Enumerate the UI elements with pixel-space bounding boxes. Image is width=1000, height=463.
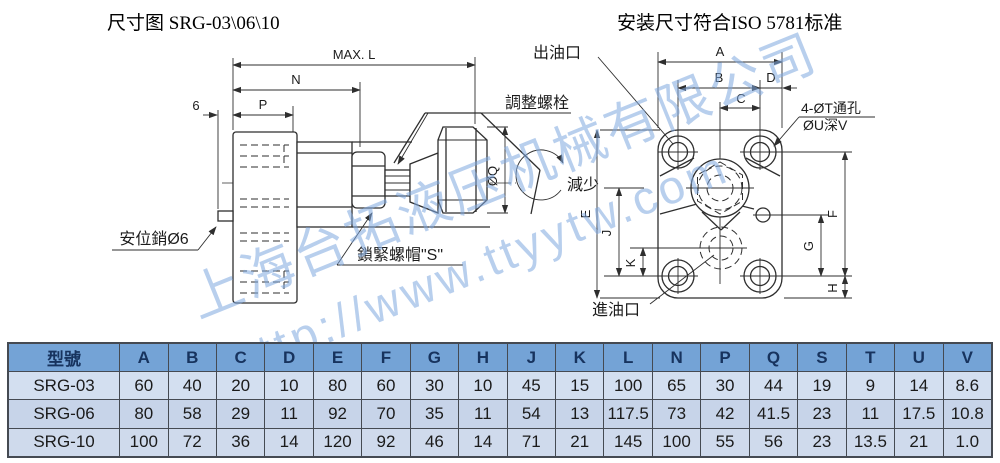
positioning-pin	[218, 211, 233, 221]
dimension-cell: 73	[652, 400, 700, 428]
dimension-cell: 35	[410, 400, 458, 428]
dimension-cell: 9	[846, 372, 894, 400]
dimension-cell: 30	[410, 372, 458, 400]
dimension-cell: 46	[410, 428, 458, 456]
dim-label-d: D	[766, 70, 775, 85]
dimension-cell: 15	[556, 372, 604, 400]
dimension-cell: 58	[168, 400, 216, 428]
dimension-cell: 42	[701, 400, 749, 428]
dimension-cell: 14	[265, 428, 313, 456]
dimension-cell: 145	[604, 428, 652, 456]
dimension-cell: 45	[507, 372, 555, 400]
dim-label-h: H	[825, 283, 840, 292]
adjust-bolt-label: 調整螺栓	[505, 94, 569, 112]
dimension-cell: 21	[556, 428, 604, 456]
inlet-label: 進油口	[592, 301, 640, 319]
dimension-cell: 13	[556, 400, 604, 428]
dimension-cell: 19	[798, 372, 846, 400]
model-column-header: 型號	[9, 344, 120, 372]
dim-label-g: G	[801, 241, 816, 251]
lock-nut	[352, 152, 385, 208]
dimension-cell: 1.0	[943, 428, 991, 456]
dimension-cell: 36	[216, 428, 264, 456]
dimension-cell: 11	[265, 400, 313, 428]
dim-label-b: B	[715, 70, 724, 85]
dimension-cell: 70	[362, 400, 410, 428]
dimension-cell: 92	[313, 400, 361, 428]
dimension-cell: 23	[798, 428, 846, 456]
dimension-cell: 17.5	[895, 400, 943, 428]
dim-column-header: T	[846, 344, 894, 372]
lock-nut-label: 鎖緊螺帽"S"	[357, 246, 443, 264]
table-header-row: 型號ABCDEFGHJKLNPQSTUV	[9, 344, 992, 372]
dimension-cell: 11	[459, 400, 507, 428]
dimension-cell: 8.6	[943, 372, 991, 400]
dim-column-header: G	[410, 344, 458, 372]
dim-column-header: P	[701, 344, 749, 372]
dimension-cell: 29	[216, 400, 264, 428]
dimension-cell: 100	[652, 428, 700, 456]
dimension-cell: 30	[701, 372, 749, 400]
dimension-table: 型號ABCDEFGHJKLNPQSTUV SRG-036040201080603…	[8, 343, 992, 457]
dim-column-header: V	[943, 344, 991, 372]
dimension-cell: 10	[265, 372, 313, 400]
table-row: SRG-0680582911927035115413117.5734241.52…	[9, 400, 992, 428]
dim-label-q: ØQ	[485, 166, 500, 186]
dim-label-f: F	[825, 210, 840, 218]
dimension-cell: 14	[895, 372, 943, 400]
dimension-cell: 11	[846, 400, 894, 428]
dim-label-n: N	[291, 72, 300, 87]
dimension-cell: 65	[652, 372, 700, 400]
technical-drawing: MAX. L N P 6	[0, 0, 1000, 340]
table-head: 型號ABCDEFGHJKLNPQSTUV	[9, 344, 992, 372]
dim-label-c: C	[736, 91, 745, 106]
dim-label-j: J	[599, 230, 614, 237]
dimension-cell: 80	[120, 400, 168, 428]
dimension-cell: 13.5	[846, 428, 894, 456]
table-row: SRG-101007236141209246147121145100555623…	[9, 428, 992, 456]
dimension-cell: 120	[313, 428, 361, 456]
dimension-cell: 80	[313, 372, 361, 400]
dim-label-maxl: MAX. L	[333, 47, 376, 62]
dim-column-header: K	[556, 344, 604, 372]
dim-label-e: E	[578, 209, 593, 218]
counterbore-label: ØU深V	[803, 117, 848, 133]
dimension-cell: 56	[749, 428, 797, 456]
dim-column-header: N	[652, 344, 700, 372]
dimension-cell: 14	[459, 428, 507, 456]
dimension-cell: 44	[749, 372, 797, 400]
dimension-cell: 117.5	[604, 400, 652, 428]
position-pin-label: 安位銷Ø6	[119, 230, 188, 248]
dim-column-header: A	[120, 344, 168, 372]
dimension-cell: 60	[120, 372, 168, 400]
dim-label-a: A	[716, 44, 725, 59]
dimension-cell: 41.5	[749, 400, 797, 428]
dim-column-header: B	[168, 344, 216, 372]
through-hole-label: 4-ØT通孔	[801, 100, 861, 116]
dim-column-header: S	[798, 344, 846, 372]
dimension-cell: 71	[507, 428, 555, 456]
dimension-cell: 100	[604, 372, 652, 400]
dimension-cell: 60	[362, 372, 410, 400]
dim-column-header: H	[459, 344, 507, 372]
dimension-cell: 40	[168, 372, 216, 400]
model-cell: SRG-06	[9, 400, 120, 428]
dim-column-header: F	[362, 344, 410, 372]
dim-label-6: 6	[192, 98, 199, 113]
model-cell: SRG-03	[9, 372, 120, 400]
dim-column-header: Q	[749, 344, 797, 372]
outlet-label: 出油口	[533, 44, 581, 62]
model-cell: SRG-10	[9, 428, 120, 456]
dimension-cell: 23	[798, 400, 846, 428]
dimension-cell: 72	[168, 428, 216, 456]
dim-label-k: K	[623, 258, 638, 267]
dimension-cell: 54	[507, 400, 555, 428]
dim-column-header: L	[604, 344, 652, 372]
dimension-cell: 55	[701, 428, 749, 456]
dim-column-header: C	[216, 344, 264, 372]
dimension-cell: 92	[362, 428, 410, 456]
dim-column-header: J	[507, 344, 555, 372]
dimension-cell: 20	[216, 372, 264, 400]
dimension-cell: 21	[895, 428, 943, 456]
dim-column-header: U	[895, 344, 943, 372]
table-row: SRG-036040201080603010451510065304419914…	[9, 372, 992, 400]
dimension-cell: 10	[459, 372, 507, 400]
dim-column-header: D	[265, 344, 313, 372]
decrease-label: 減少	[567, 176, 599, 194]
dimension-cell: 100	[120, 428, 168, 456]
dim-label-p: P	[259, 97, 268, 112]
dim-column-header: E	[313, 344, 361, 372]
side-view-drawing: MAX. L N P 6	[112, 47, 599, 303]
dimension-cell: 10.8	[943, 400, 991, 428]
table-body: SRG-036040201080603010451510065304419914…	[9, 372, 992, 457]
